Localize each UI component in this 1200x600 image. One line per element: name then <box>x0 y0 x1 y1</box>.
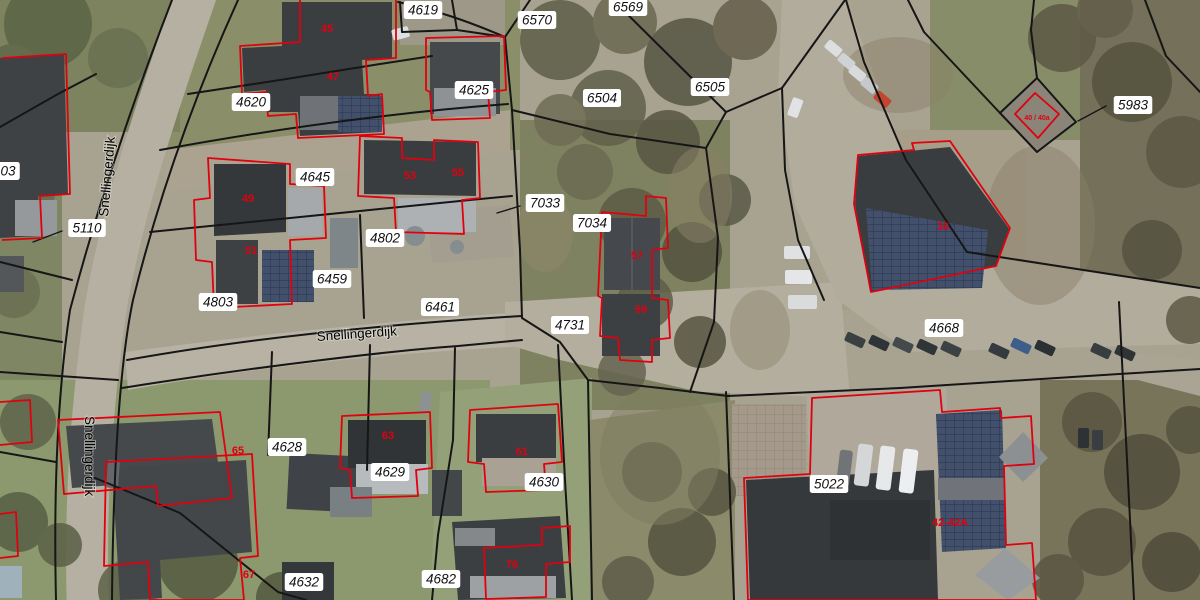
parcel-label-6459: 6459 <box>313 270 352 288</box>
tree-canopy <box>668 147 732 243</box>
building-roof <box>348 420 426 468</box>
parcel-label-4629: 4629 <box>371 463 410 481</box>
house-number-label-61: 61 <box>516 446 528 458</box>
parcel-label-4802: 4802 <box>366 229 405 247</box>
svg-text:4802: 4802 <box>370 231 401 246</box>
parcel-label-4628: 4628 <box>268 438 307 456</box>
parcel-label-5983: 5983 <box>1114 96 1153 114</box>
parcel-label-4645: 4645 <box>296 168 335 186</box>
building-roof <box>288 188 322 236</box>
building-roof <box>470 576 556 598</box>
svg-text:6459: 6459 <box>317 272 348 287</box>
svg-text:4731: 4731 <box>555 318 585 333</box>
tree-canopy <box>1104 434 1180 510</box>
parcel-label-6504: 6504 <box>583 89 621 107</box>
tree-canopy <box>730 290 790 370</box>
parcel-label-6570: 6570 <box>518 11 557 29</box>
building-roof <box>938 478 1004 500</box>
tree-canopy <box>557 144 613 200</box>
svg-text:4629: 4629 <box>375 465 406 480</box>
vehicle <box>788 295 817 309</box>
parcel-label-6461: 6461 <box>421 298 459 316</box>
map-viewport[interactable]: 4619657065694620462565046505598303511046… <box>0 0 1200 600</box>
parcel-label-4731: 4731 <box>551 316 589 334</box>
building-roof <box>0 256 24 292</box>
tree-canopy <box>1122 220 1182 280</box>
svg-text:4619: 4619 <box>408 3 439 18</box>
parcel-label-4632: 4632 <box>285 573 324 591</box>
building-roof <box>830 500 930 560</box>
svg-text:4630: 4630 <box>529 475 560 490</box>
svg-text:5983: 5983 <box>1118 98 1149 113</box>
house-number-label-76: 76 <box>506 559 518 571</box>
tree-canopy <box>88 28 148 88</box>
parcel-label-5110: 5110 <box>68 219 106 237</box>
parcel-label-6569: 6569 <box>609 0 648 16</box>
building-roof <box>0 566 22 598</box>
house-number-label-47: 47 <box>327 71 339 83</box>
house-number-label-65: 65 <box>232 445 244 457</box>
parcel-label-4619: 4619 <box>404 1 443 19</box>
parcel-label-4803: 4803 <box>199 293 238 311</box>
parcel-label-4630: 4630 <box>525 473 564 491</box>
house-number-label-59: 59 <box>635 304 647 316</box>
svg-text:7034: 7034 <box>577 216 607 231</box>
svg-text:4632: 4632 <box>289 575 320 590</box>
house-number-label-67: 67 <box>243 569 255 581</box>
house-number-label-45: 45 <box>321 23 333 35</box>
tree-canopy <box>38 523 82 567</box>
house-number-label-53: 53 <box>404 170 416 182</box>
tree-canopy <box>600 385 720 525</box>
house-number-label-30: 30 <box>937 221 949 233</box>
building-roof <box>405 226 425 246</box>
svg-text:4682: 4682 <box>426 572 457 587</box>
building-roof <box>338 96 382 132</box>
parcel-label-4625: 4625 <box>455 81 494 99</box>
svg-text:4803: 4803 <box>203 295 234 310</box>
house-number-label-51: 51 <box>245 245 257 257</box>
parcel-label-03: 03 <box>0 162 20 180</box>
svg-text:6505: 6505 <box>695 80 726 95</box>
svg-text:5022: 5022 <box>814 477 845 492</box>
house-number-label-55: 55 <box>452 167 464 179</box>
building-roof <box>262 250 314 302</box>
svg-text:6504: 6504 <box>587 91 617 106</box>
parcel-label-5022: 5022 <box>810 475 849 493</box>
parcel-label-7034: 7034 <box>573 214 611 232</box>
svg-text:4625: 4625 <box>459 83 490 98</box>
building-roof <box>15 200 57 236</box>
parcel-label-7033: 7033 <box>526 194 565 212</box>
building-roof <box>330 218 358 268</box>
parcel-label-4668: 4668 <box>925 319 964 337</box>
house-number-label-63: 63 <box>382 430 394 442</box>
building-roof <box>455 528 495 546</box>
house-number-label-40-40a: 40 / 40a <box>1024 115 1049 122</box>
parcel-label-6505: 6505 <box>691 78 730 96</box>
map-canvas: 4619657065694620462565046505598303511046… <box>0 0 1200 600</box>
svg-text:6569: 6569 <box>613 0 644 15</box>
svg-text:7033: 7033 <box>530 196 561 211</box>
svg-text:4668: 4668 <box>929 321 960 336</box>
building-roof <box>450 240 464 254</box>
svg-text:4645: 4645 <box>300 170 331 185</box>
parcel-label-4682: 4682 <box>422 570 461 588</box>
tree-canopy <box>1142 532 1200 592</box>
tree-canopy <box>534 94 586 146</box>
vehicle <box>785 270 812 284</box>
vehicle <box>1078 428 1089 448</box>
parcel-label-4620: 4620 <box>232 93 271 111</box>
svg-text:5110: 5110 <box>72 221 102 236</box>
street-label-snellingerdijk-3: Snellingerdijk <box>82 416 97 497</box>
house-number-label-42-42a: 42-42A <box>932 517 968 529</box>
svg-text:6570: 6570 <box>522 13 553 28</box>
vehicle <box>1092 430 1103 450</box>
svg-text:03: 03 <box>0 164 16 179</box>
svg-text:4620: 4620 <box>236 95 267 110</box>
svg-text:6461: 6461 <box>425 300 455 315</box>
svg-text:4628: 4628 <box>272 440 303 455</box>
house-number-label-49: 49 <box>242 193 254 205</box>
house-number-label-57: 57 <box>631 250 643 262</box>
